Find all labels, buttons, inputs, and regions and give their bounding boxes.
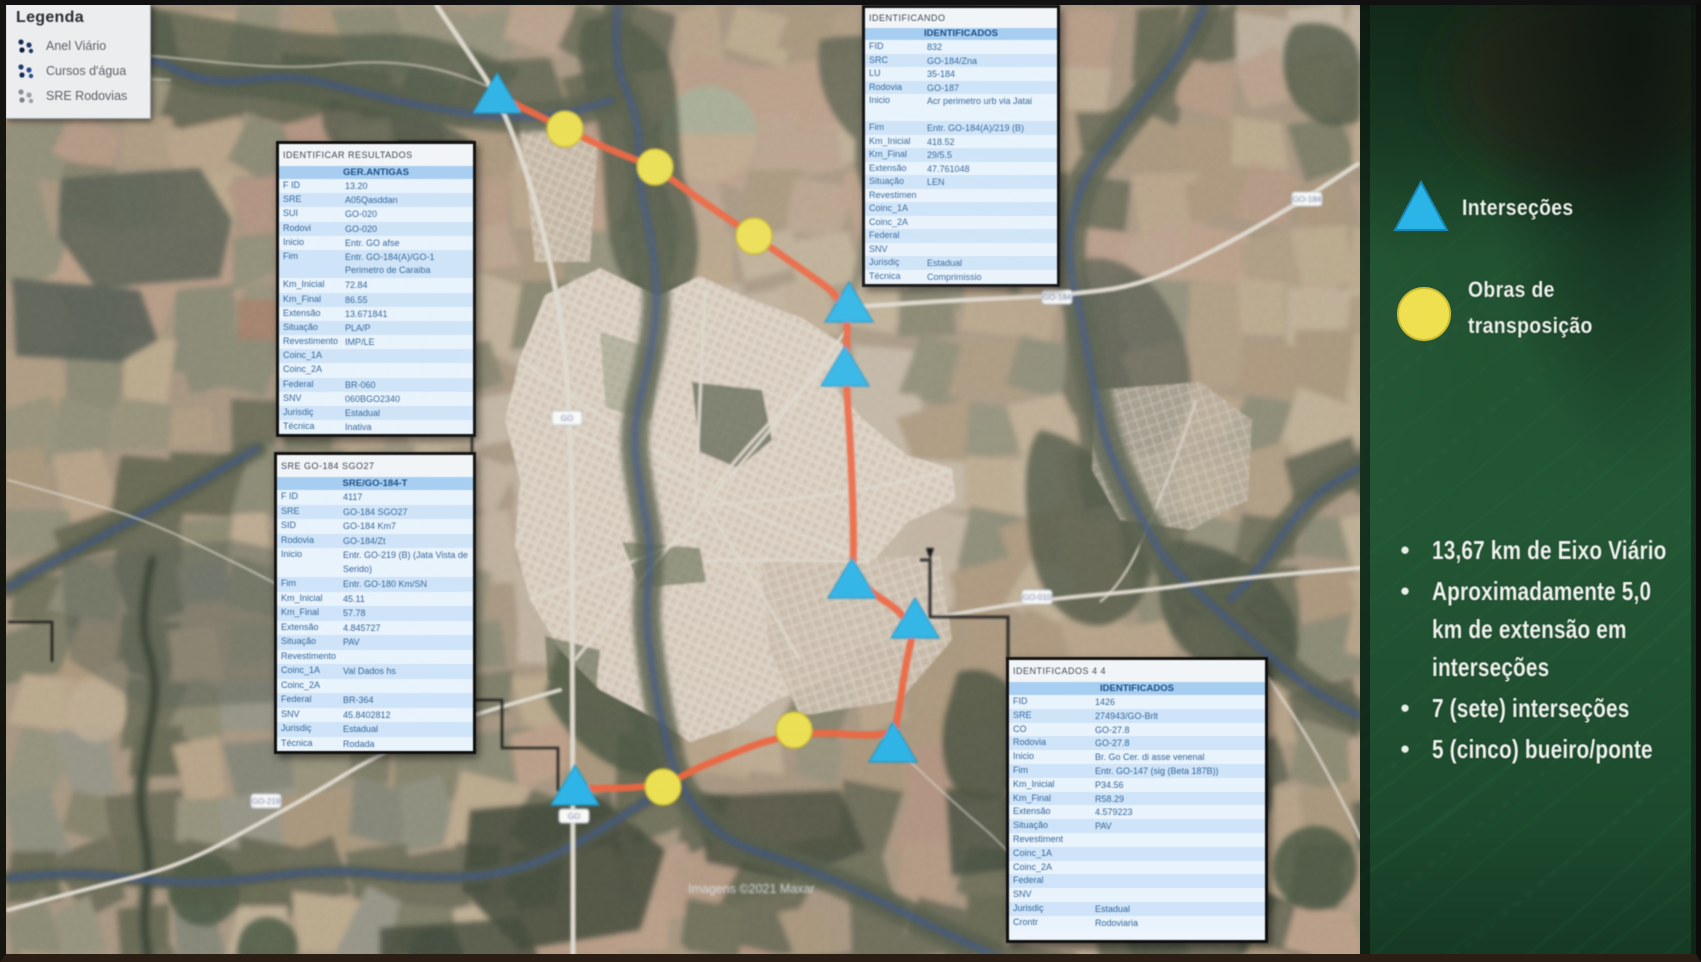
svg-text:GO: GO — [568, 812, 580, 821]
svg-text:Imagens ©2021 Maxar: Imagens ©2021 Maxar — [688, 882, 815, 896]
svg-text:GO-219: GO-219 — [252, 797, 281, 806]
svg-text:GO-184: GO-184 — [1293, 195, 1322, 204]
svg-text:GO: GO — [561, 414, 573, 423]
svg-text:GO-184: GO-184 — [1043, 293, 1072, 302]
svg-text:GO-010: GO-010 — [1023, 593, 1052, 602]
